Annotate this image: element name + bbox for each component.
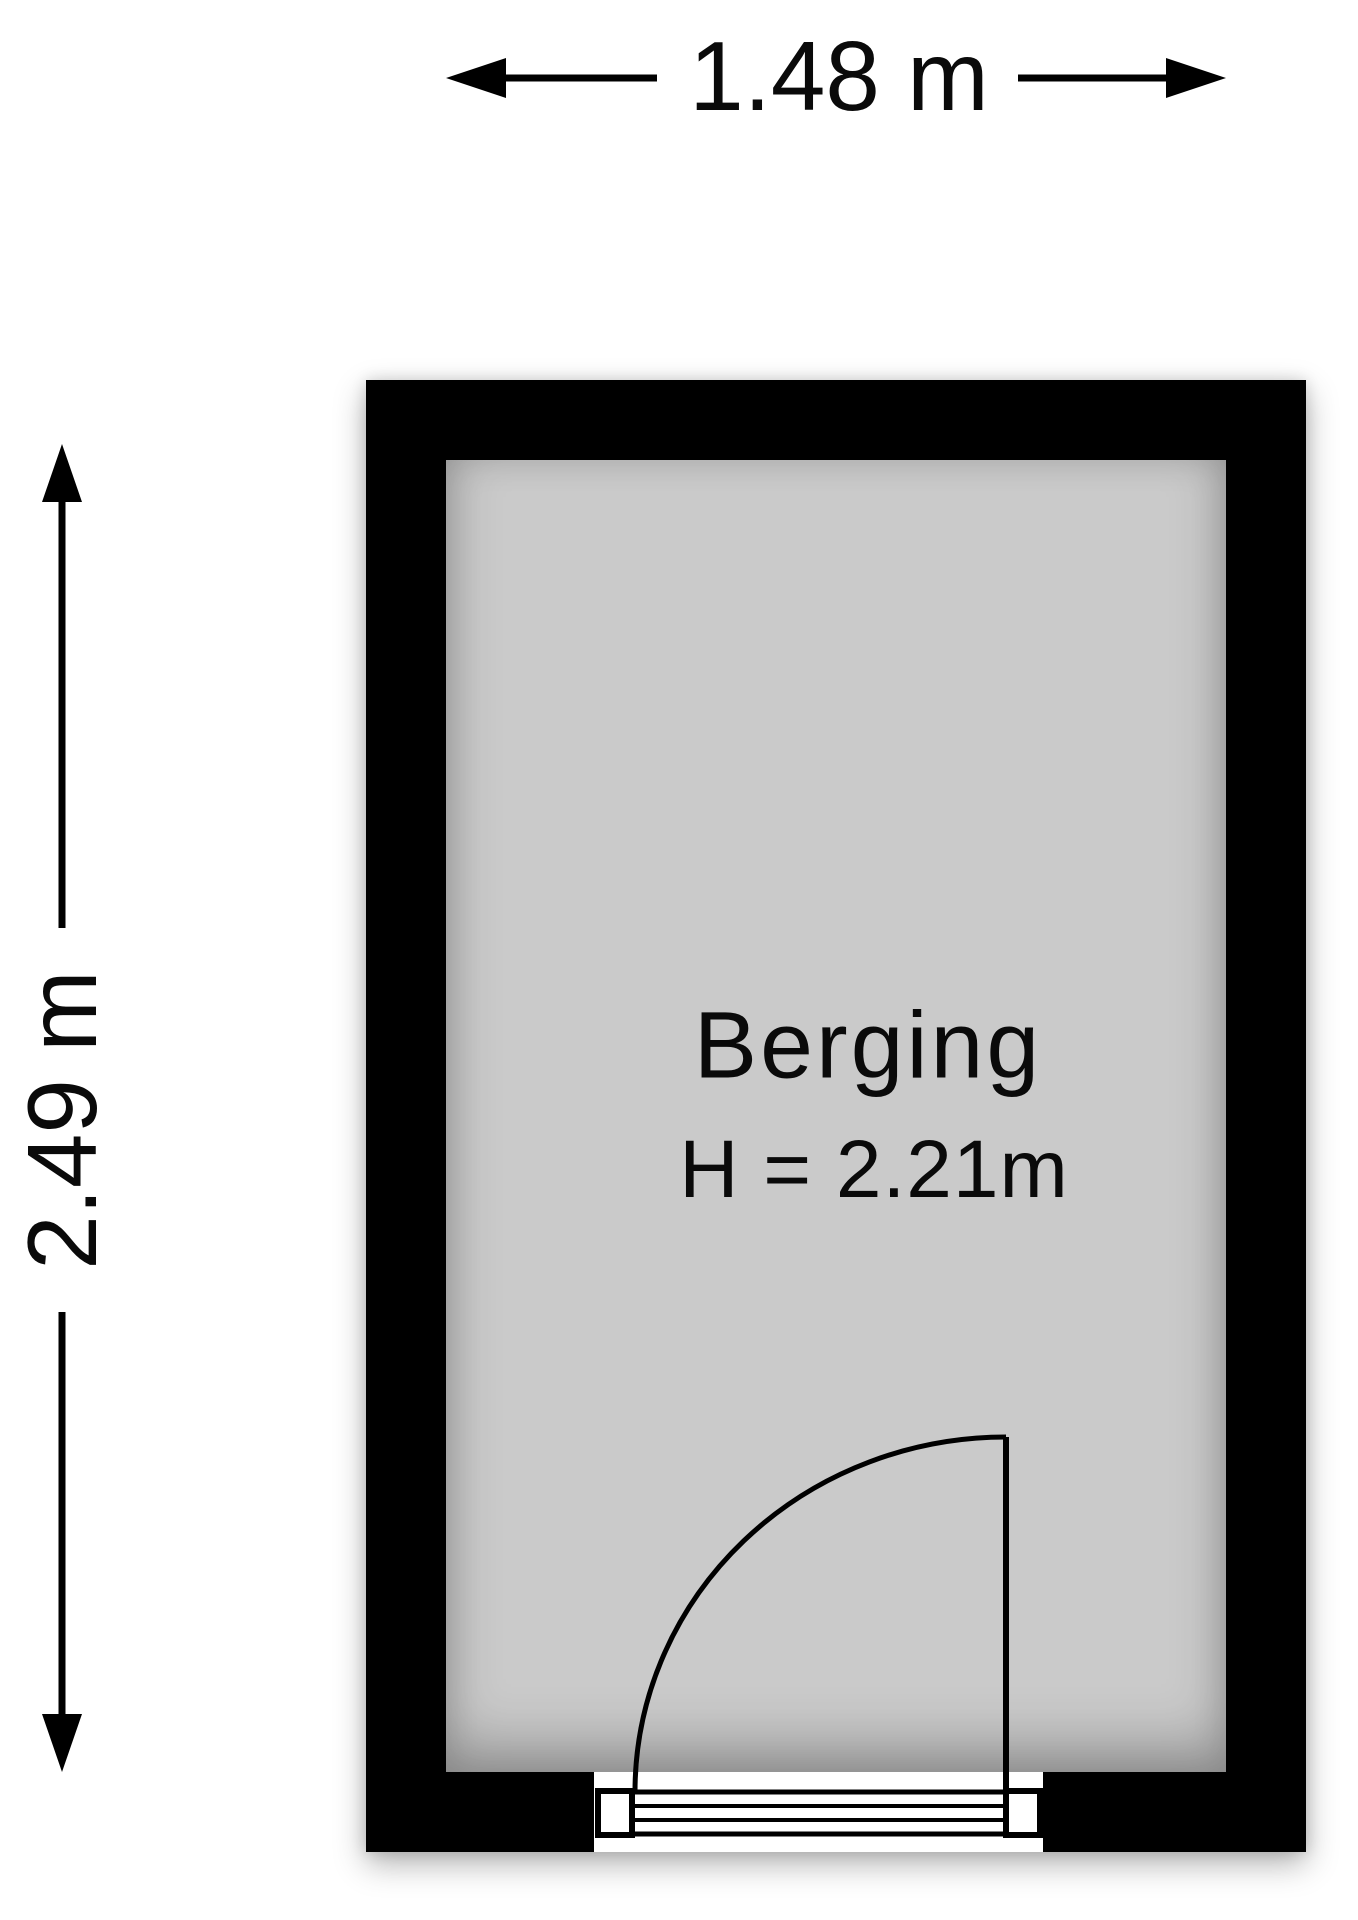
depth-dimension-label: 2.49 m (13, 970, 111, 1270)
plan-linework (0, 0, 1358, 1920)
door-symbol (635, 1437, 1006, 1833)
room-name-label: Berging (694, 999, 1042, 1094)
arrow-down-icon (42, 1714, 82, 1772)
floorplan-canvas: 1.48 m 2.49 m Berging H = 2.21m (0, 0, 1358, 1920)
door-jamb-right (1006, 1791, 1040, 1835)
arrow-left-icon (446, 58, 506, 98)
door-jamb-left (598, 1791, 632, 1835)
width-dimension-label: 1.48 m (689, 27, 989, 125)
door-swing-arc (635, 1437, 1006, 1792)
arrow-up-icon (42, 444, 82, 502)
door-threshold (598, 1791, 1040, 1835)
ceiling-height-label: H = 2.21m (679, 1129, 1069, 1211)
arrow-right-icon (1166, 58, 1226, 98)
